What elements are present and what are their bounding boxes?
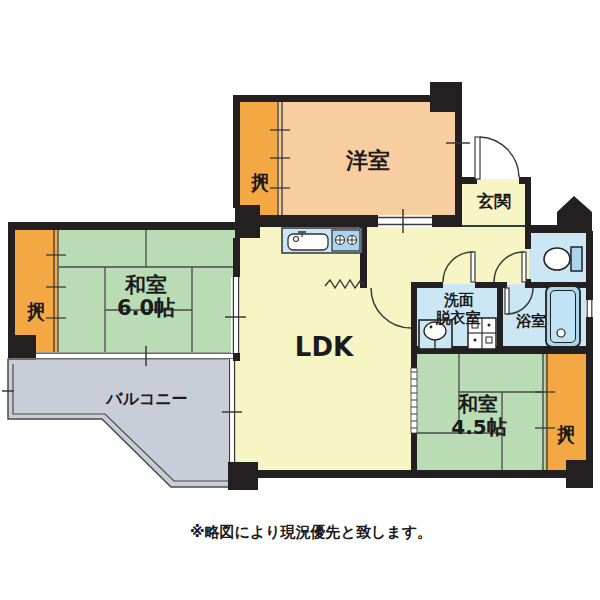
label-entrance: 玄関 [477, 193, 511, 210]
floor-plan-note: ※略図により現況優先と致します。 [190, 525, 432, 540]
label-japanese-room-45-size: 4.5帖 [451, 417, 506, 437]
balcony-floor [8, 359, 234, 487]
toilet-icon [544, 247, 582, 271]
floor-plan: 洋室 押入 玄関 和室 6.0帖 押入 LDK 洗面 脱衣室 浴室 和室 4.5… [0, 0, 600, 600]
label-bathroom: 浴室 [516, 314, 546, 329]
entrance-door [475, 137, 519, 179]
label-ldk: LDK [295, 334, 353, 360]
label-closet-top: 押入 [252, 158, 269, 164]
label-washroom-line1: 洗面 [444, 293, 474, 308]
floor-plan-drawing [0, 0, 600, 600]
pillar-pentagon [557, 196, 592, 233]
stove-icon [332, 230, 360, 251]
kitchen-counter [282, 228, 362, 253]
label-western-room: 洋室 [346, 150, 390, 172]
label-japanese-room-45: 和室 [458, 394, 498, 414]
kitchen-sink-icon [288, 234, 328, 250]
label-washroom-line2: 脱衣室 [436, 311, 481, 326]
sliding-door-ldk-japanese45 [411, 368, 417, 433]
window-bathroom [586, 300, 593, 317]
label-balcony: バルコニー [106, 391, 188, 407]
bathtub-icon [546, 286, 580, 347]
label-closet-left: 押入 [28, 287, 45, 293]
label-japanese-room-6: 和室 [125, 275, 167, 296]
label-closet-right: 押入 [558, 410, 575, 416]
label-japanese-room-6-size: 6.0帖 [117, 298, 175, 319]
